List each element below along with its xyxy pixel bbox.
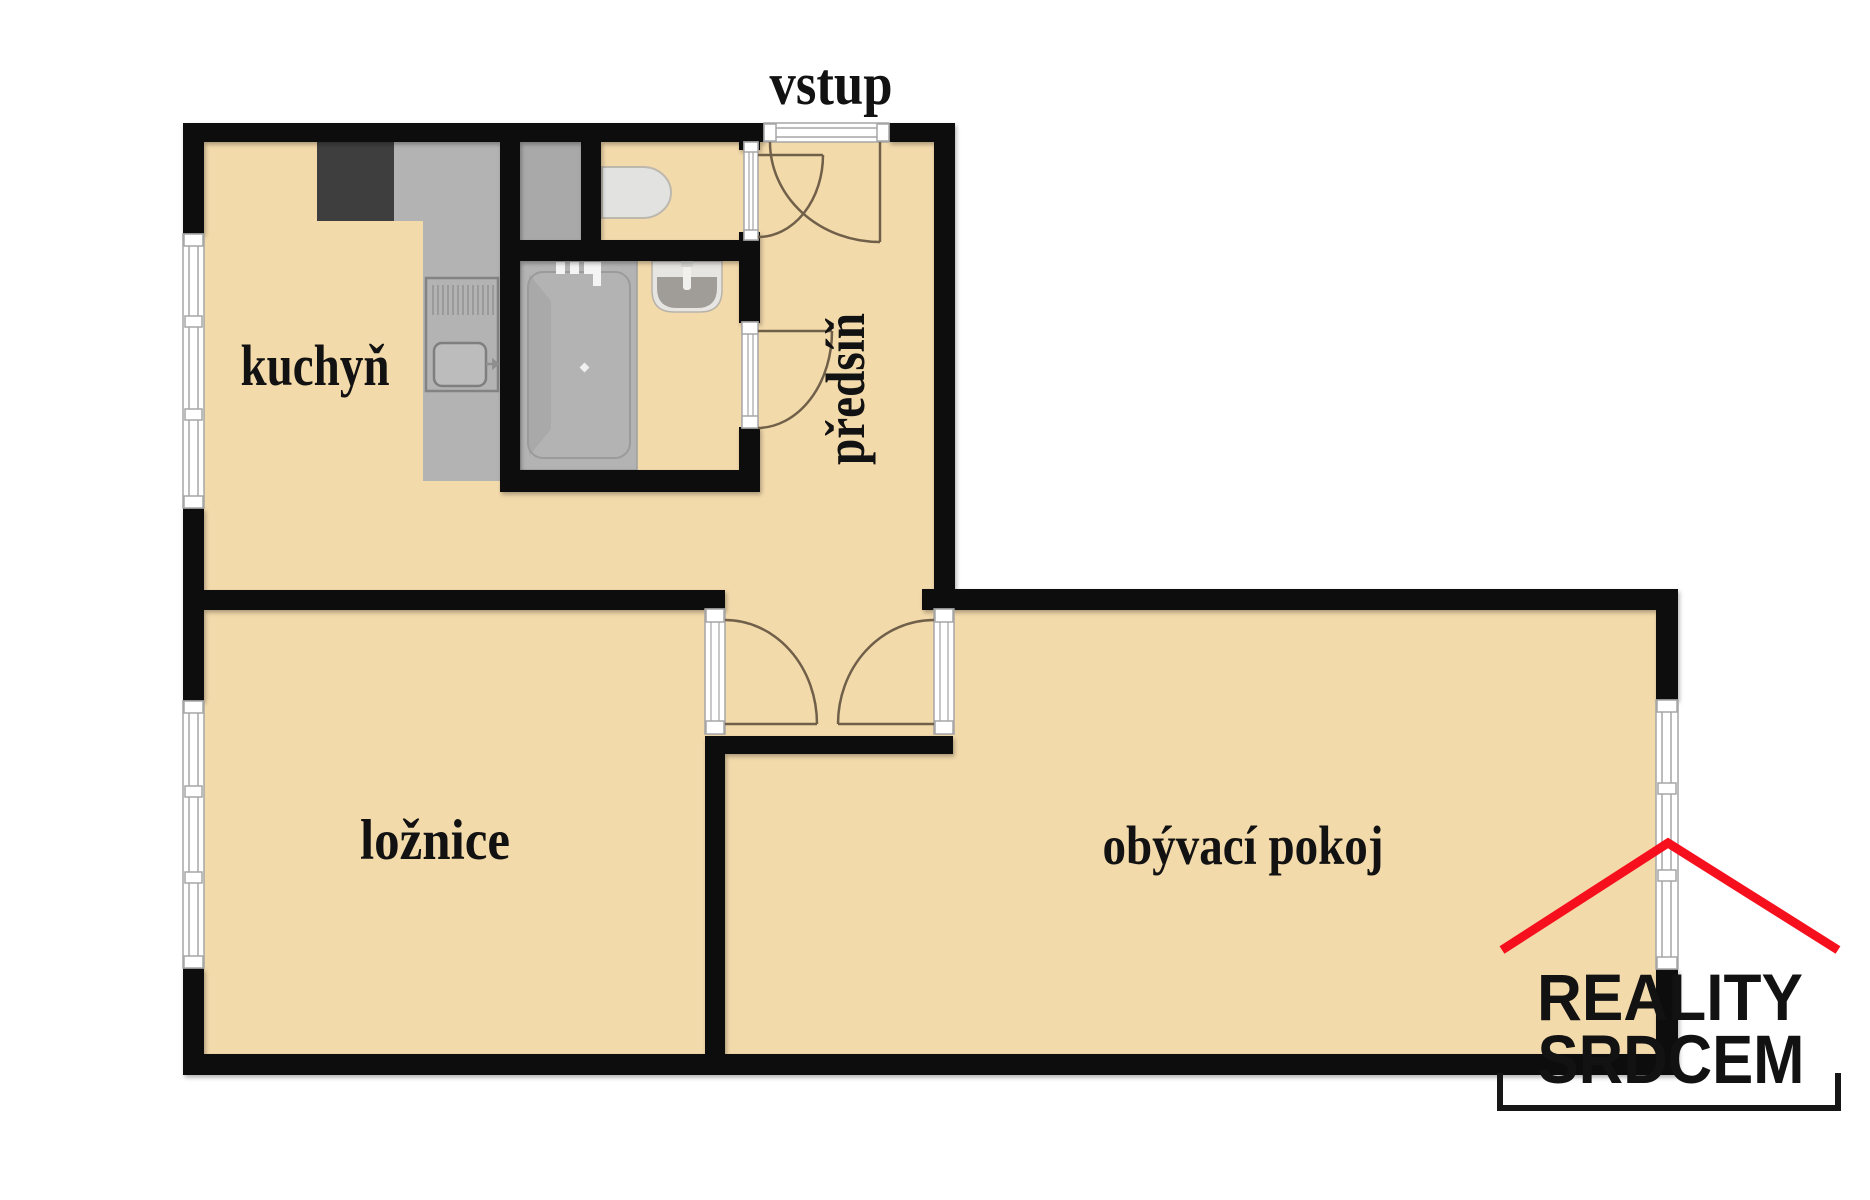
svg-text:ložnice: ložnice	[360, 809, 510, 872]
svg-text:předsíň: předsíň	[815, 313, 876, 465]
svg-text:vstup: vstup	[770, 51, 893, 117]
svg-text:kuchyň: kuchyň	[241, 333, 390, 398]
svg-text:SRDCEM: SRDCEM	[1538, 1021, 1805, 1098]
svg-text:obývací pokoj: obývací pokoj	[1103, 815, 1384, 876]
